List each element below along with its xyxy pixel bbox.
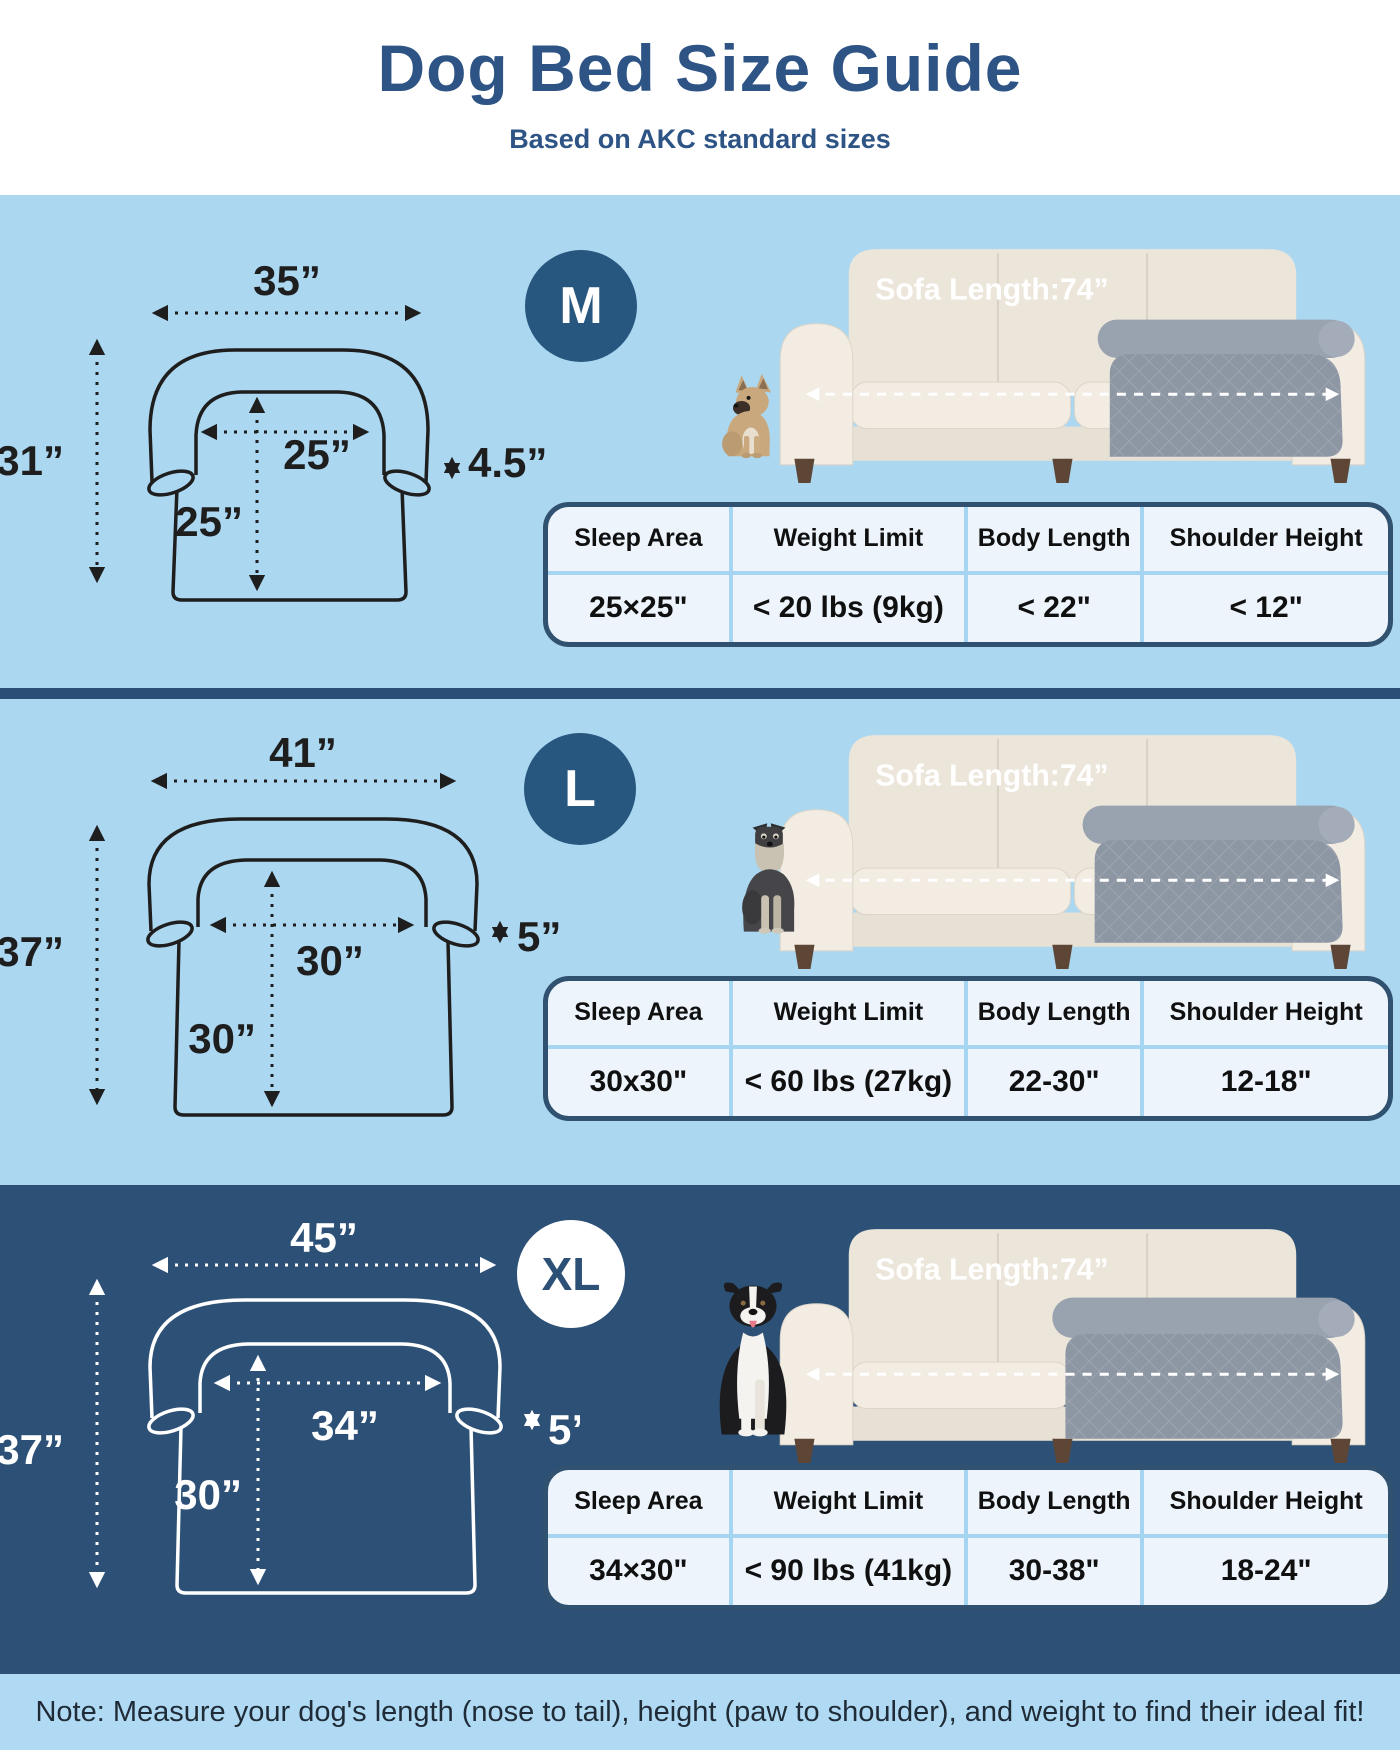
table-value: 25×25" — [548, 575, 733, 643]
sofa-leg — [1331, 1439, 1351, 1463]
table-value: 22-30" — [968, 1049, 1144, 1117]
measure-note: Note: Measure your dog's length (nose to… — [35, 1696, 1364, 1729]
table-value: < 60 lbs (27kg) — [733, 1049, 968, 1117]
bolster-height-label: 5” — [517, 913, 560, 960]
border-collie-icon — [704, 1263, 802, 1453]
schnauzer-icon — [730, 811, 808, 943]
dog-bed-cover — [1098, 320, 1355, 457]
sofa-length-label: Sofa Length:74” — [875, 274, 1108, 307]
sofa-illustration-m: Sofa Length:74” — [750, 241, 1395, 483]
section-divider — [0, 688, 1400, 699]
table-value: < 12" — [1144, 575, 1388, 643]
size-badge-l: L — [524, 733, 636, 845]
spec-table-l: Sleep Area Weight Limit Body Length Shou… — [543, 976, 1393, 1121]
sofa-leg — [1052, 459, 1072, 483]
bed-dimension-diagram-m: 35” 31” 25” 25” 4.5” — [0, 225, 560, 625]
sofa-leg — [1052, 945, 1072, 969]
sofa-length-label: Sofa Length:74” — [875, 1254, 1108, 1287]
sofa-illustration-l: Sofa Length:74” — [750, 727, 1395, 969]
table-header: Body Length — [968, 507, 1144, 575]
footer-note-bar: Note: Measure your dog's length (nose to… — [0, 1674, 1400, 1750]
table-header: Weight Limit — [733, 1470, 968, 1538]
inner-height-label: 30” — [174, 1471, 242, 1518]
bed-dimension-diagram-xl: 45” 37” 34” 30” 5” — [0, 1215, 580, 1625]
height-label: 37” — [0, 1426, 64, 1473]
spec-table-xl: Sleep Area Weight Limit Body Length Shou… — [543, 1465, 1393, 1610]
inner-width-label: 30” — [296, 937, 364, 984]
bolster-height-label: 5” — [548, 1406, 580, 1453]
table-header: Sleep Area — [548, 1470, 733, 1538]
width-label: 45” — [290, 1215, 358, 1261]
table-value: < 90 lbs (41kg) — [733, 1538, 968, 1606]
table-header: Body Length — [968, 1470, 1144, 1538]
table-value: 12-18" — [1144, 1049, 1388, 1117]
table-value: 18-24" — [1144, 1538, 1388, 1606]
table-value: 30x30" — [548, 1049, 733, 1117]
inner-height-label: 30” — [188, 1015, 256, 1062]
table-value: 30-38" — [968, 1538, 1144, 1606]
dog-bed-cover — [1052, 1298, 1354, 1439]
size-badge-label: L — [564, 759, 596, 819]
table-header: Weight Limit — [733, 507, 968, 575]
height-label: 31” — [0, 437, 64, 484]
table-header: Shoulder Height — [1144, 981, 1388, 1049]
inner-width-label: 25” — [283, 431, 351, 478]
sofa-illustration-xl: Sofa Length:74” — [750, 1221, 1395, 1463]
table-header: Weight Limit — [733, 981, 968, 1049]
page-subtitle: Based on AKC standard sizes — [0, 124, 1400, 155]
page-header: Dog Bed Size Guide Based on AKC standard… — [0, 0, 1400, 195]
spec-table-m: Sleep Area Weight Limit Body Length Shou… — [543, 502, 1393, 647]
table-value: < 22" — [968, 575, 1144, 643]
sofa-leg — [1331, 459, 1351, 483]
size-badge-xl: XL — [517, 1220, 625, 1328]
inner-height-label: 25” — [175, 498, 243, 545]
page-title: Dog Bed Size Guide — [0, 0, 1400, 106]
inner-width-label: 34” — [311, 1402, 379, 1449]
table-value: < 20 lbs (9kg) — [733, 575, 968, 643]
size-badge-label: XL — [542, 1247, 601, 1301]
section-size-l: 41” 37” 30” 30” 5” L — [0, 699, 1400, 1185]
table-value: 34×30" — [548, 1538, 733, 1606]
sofa-leg — [1052, 1439, 1072, 1463]
table-header: Sleep Area — [548, 507, 733, 575]
seat-cushion — [851, 382, 1071, 428]
table-header: Body Length — [968, 981, 1144, 1049]
table-header: Sleep Area — [548, 981, 733, 1049]
height-label: 37” — [0, 928, 64, 975]
sofa-leg — [1331, 945, 1351, 969]
width-label: 35” — [253, 257, 321, 304]
table-header: Shoulder Height — [1144, 1470, 1388, 1538]
bed-dimension-diagram-l: 41” 37” 30” 30” 5” — [0, 729, 560, 1139]
bed-bolster-inner — [198, 860, 426, 927]
section-size-xl: 45” 37” 34” 30” 5” XL — [0, 1185, 1400, 1674]
dog-bed-cover — [1083, 806, 1355, 943]
seat-cushion — [851, 868, 1071, 914]
section-size-m: 35” 31” 25” 25” 4.5” M — [0, 195, 1400, 688]
width-label: 41” — [269, 729, 337, 776]
sofa-leg — [794, 459, 814, 483]
sofa-leg — [794, 945, 814, 969]
french-bulldog-icon — [712, 365, 782, 465]
seat-cushion — [851, 1362, 1071, 1408]
bolster-height-label: 4.5” — [468, 439, 547, 486]
size-badge-m: M — [525, 250, 637, 362]
sofa-length-label: Sofa Length:74” — [875, 760, 1108, 793]
size-badge-label: M — [559, 276, 602, 336]
table-header: Shoulder Height — [1144, 507, 1388, 575]
